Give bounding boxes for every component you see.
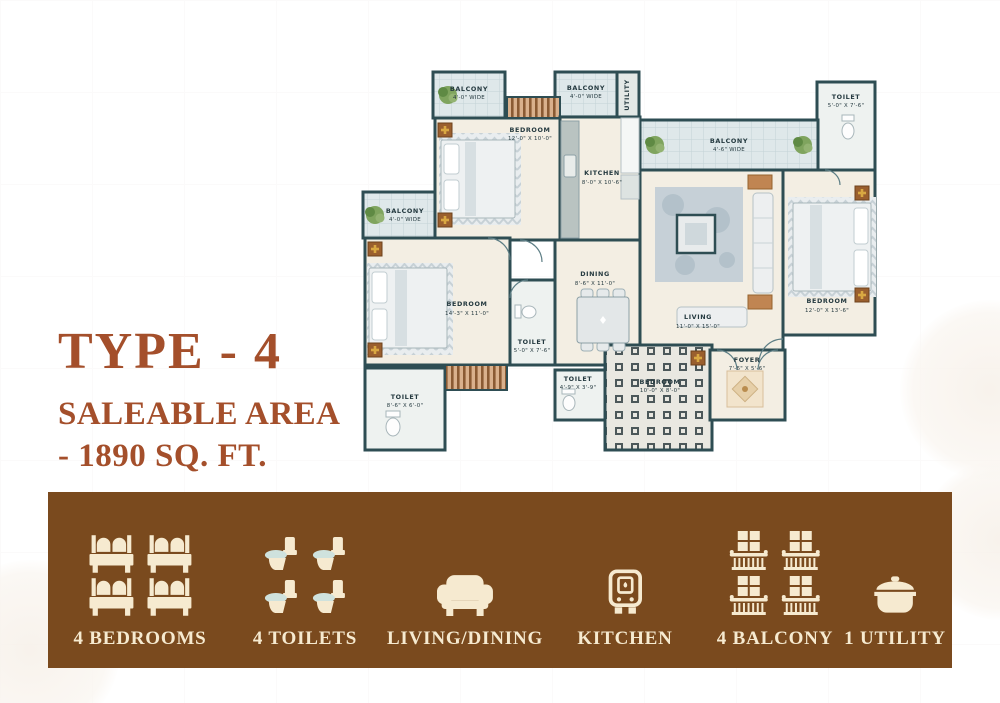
pillow: [854, 250, 868, 286]
living-label: LIVING: [684, 313, 712, 321]
bedroom-right-label: BEDROOM: [807, 297, 848, 305]
toilet-bottom-left-dims: 8'-6" X 6'-0": [387, 403, 424, 409]
bedroom-top-left-dims: 12'-0" X 10'-0": [508, 136, 552, 142]
toilet-small-label: TOILET: [564, 375, 593, 383]
toilet-top-right-label: TOILET: [832, 93, 861, 101]
saleable-area-text: SALEABLE AREA - 1890 SQ. FT.: [58, 393, 341, 477]
toilet-icon: [263, 535, 299, 573]
saleable-area-line2: - 1890 SQ. FT.: [58, 435, 341, 477]
floor-plan: BALCONY 4'-0" WIDE BEDROOM 12'-0" X 10'-…: [355, 55, 955, 455]
feature-bedrooms: 4 BEDROOMS: [73, 535, 206, 650]
bedroom-right-dims: 12'-0" X 13'-6": [805, 308, 849, 314]
type-title: TYPE - 4: [58, 326, 341, 378]
feature-living-dining: LIVING/DINING: [387, 574, 543, 650]
bed-icon: [146, 578, 192, 616]
bedroom-top-left-label: BEDROOM: [510, 126, 551, 134]
pillow: [444, 144, 459, 174]
kitchen-label: KITCHEN: [584, 169, 620, 177]
toilet-icon-grid: [263, 535, 347, 616]
toilet-icon: [311, 535, 347, 573]
sofa-icon: [437, 574, 493, 616]
bed-icon-grid: [88, 535, 192, 616]
balcony-top-mid-label: BALCONY: [567, 84, 605, 92]
bed-icon: [88, 578, 134, 616]
blanket: [465, 142, 476, 216]
bed-icon: [88, 535, 134, 573]
bedroom-left-label: BEDROOM: [447, 300, 488, 308]
bedroom-small-dims: 10'-0" X 8'-0": [640, 388, 680, 394]
bed-icon: [146, 535, 192, 573]
balcony-icon-grid: [729, 531, 821, 616]
dining-label: DINING: [580, 270, 610, 278]
pillow: [444, 180, 459, 210]
living-dims: 11'-0" X 15'-0": [676, 324, 720, 330]
toilet-bottom-left-label: TOILET: [391, 393, 420, 401]
blanket: [395, 270, 407, 346]
toilet-small-dims: 4'-9" X 3'-9": [560, 385, 597, 391]
features-banner: 4 BEDROOMS 4 TOILETS LIVING/DINING KITCH…: [48, 492, 952, 668]
dining-dims: 8'-6" X 11'-0": [575, 281, 615, 287]
room-balcony-right: [640, 120, 818, 170]
wardrobe: [507, 97, 560, 118]
room-toilet-bottom-left: [365, 368, 445, 450]
toilet-icon: [311, 578, 347, 616]
balcony-top-left-label: BALCONY: [450, 85, 488, 93]
stove-icon: [607, 569, 643, 616]
foyer-label: FOYER: [734, 356, 760, 364]
foyer-dims: 7'-6" X 5'-6": [729, 366, 766, 372]
feature-label-toilets: 4 TOILETS: [253, 628, 357, 650]
feature-balcony: 4 BALCONY: [717, 531, 833, 650]
feature-toilets: 4 TOILETS: [253, 535, 357, 650]
bedroom-left-dims: 14'-3" X 11'-0": [445, 311, 489, 317]
foyer-tile: [727, 371, 763, 407]
feature-label-living-dining: LIVING/DINING: [387, 628, 543, 650]
balcony-left-dims: 4'-0" WIDE: [389, 217, 421, 223]
kitchen-dims: 8'-0" X 10'-6": [582, 180, 622, 186]
saleable-area-line1: SALEABLE AREA: [58, 393, 341, 435]
pillow: [854, 208, 868, 244]
feature-kitchen: KITCHEN: [577, 569, 672, 650]
feature-label-kitchen: KITCHEN: [577, 628, 672, 650]
balcony-right-dims: 4'-6" WIDE: [713, 147, 745, 153]
pot-icon: [870, 576, 920, 616]
balcony-right-label: BALCONY: [710, 137, 748, 145]
balcony-icon: [781, 531, 821, 571]
balcony-icon: [729, 531, 769, 571]
feature-label-utility: 1 UTILITY: [844, 628, 946, 650]
balcony-left-label: BALCONY: [386, 207, 424, 215]
balcony-top-left-dims: 4'-0" WIDE: [453, 95, 485, 101]
feature-label-bedrooms: 4 BEDROOMS: [73, 628, 206, 650]
toilet-mid-dims: 5'-0" X 7'-6": [514, 348, 551, 354]
pillow: [372, 309, 387, 340]
headline-block: TYPE - 4 SALEABLE AREA - 1890 SQ. FT.: [58, 326, 341, 477]
blanket: [810, 205, 822, 289]
balcony-icon: [781, 576, 821, 616]
balcony-icon: [729, 576, 769, 616]
pillow: [372, 272, 387, 303]
toilet-mid-label: TOILET: [518, 338, 547, 346]
feature-utility: 1 UTILITY: [844, 576, 946, 650]
utility-label: UTILITY: [623, 79, 631, 111]
balcony-top-mid-dims: 4'-0" WIDE: [570, 94, 602, 100]
toilet-icon: [263, 578, 299, 616]
wardrobe: [445, 365, 507, 390]
brochure-page: TYPE - 4 SALEABLE AREA - 1890 SQ. FT.: [0, 0, 1000, 703]
dining-set: [577, 289, 629, 351]
feature-label-balcony: 4 BALCONY: [717, 628, 833, 650]
bedroom-small-label: BEDROOM: [640, 378, 681, 386]
toilet-top-right-dims: 5'-0" X 7'-6": [828, 103, 865, 109]
